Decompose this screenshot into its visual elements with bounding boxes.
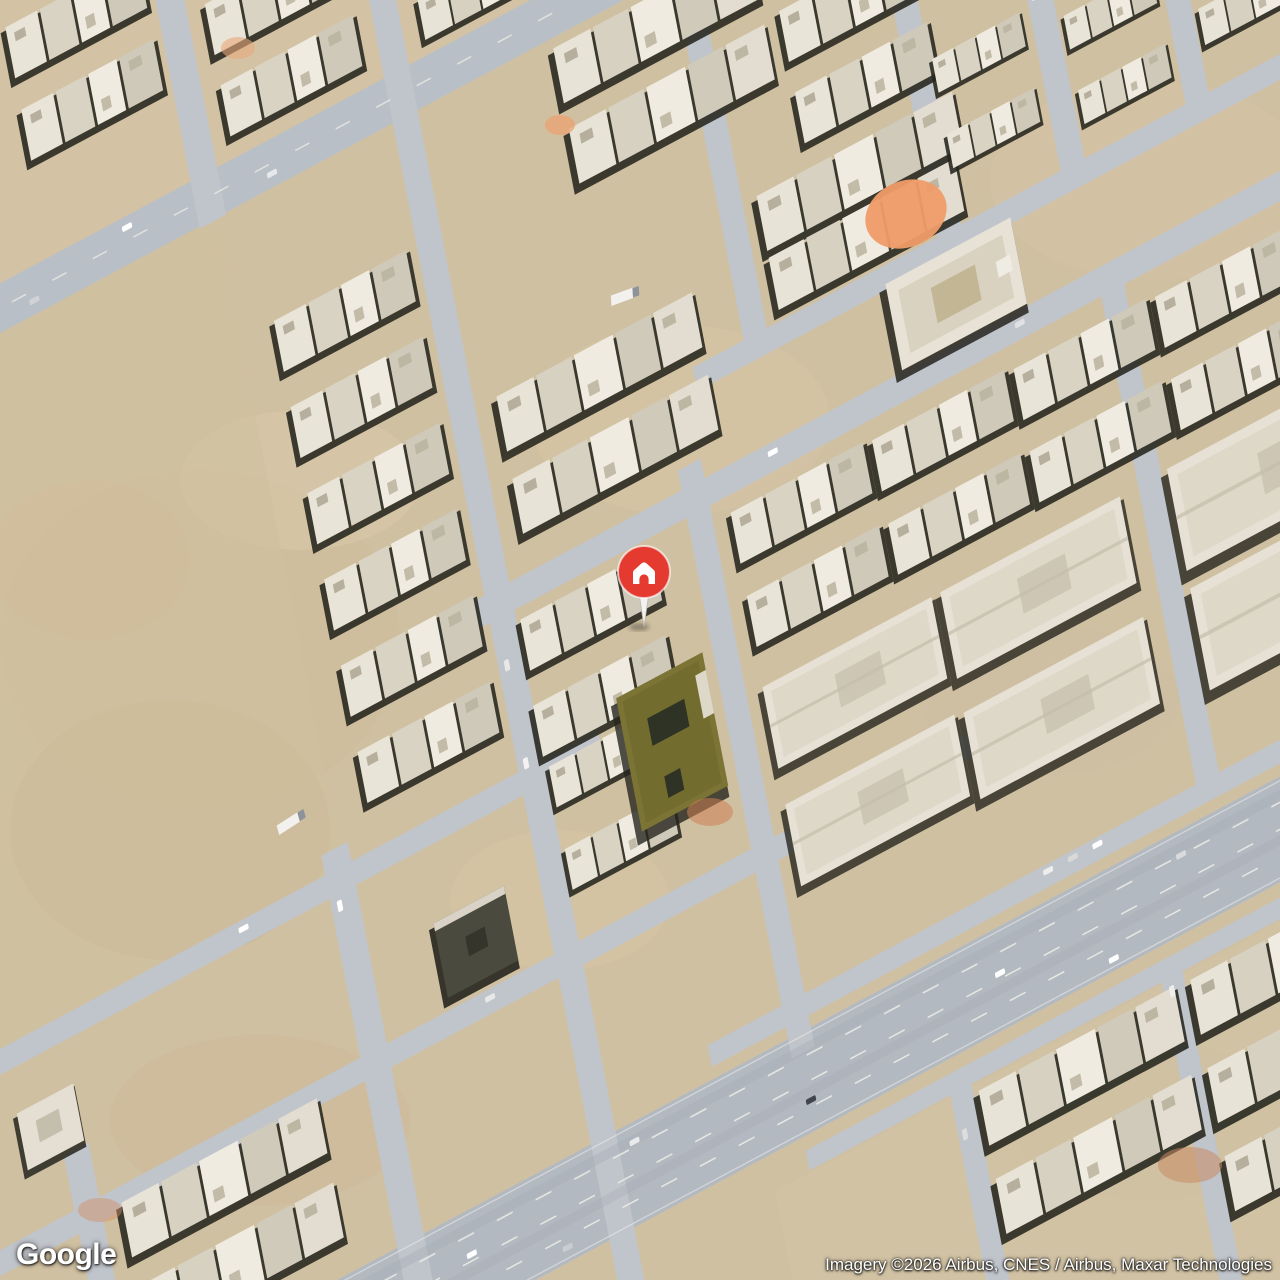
satellite-imagery <box>0 0 1280 1280</box>
satellite-map[interactable]: Google Imagery ©2026 Airbus, CNES / Airb… <box>0 0 1280 1280</box>
home-location-pin[interactable] <box>614 540 674 632</box>
imagery-attribution: Imagery ©2026 Airbus, CNES / Airbus, Max… <box>825 1255 1272 1275</box>
pin-ground-shadow <box>629 623 649 631</box>
pin-stem <box>640 596 649 627</box>
google-logo[interactable]: Google <box>16 1238 116 1272</box>
